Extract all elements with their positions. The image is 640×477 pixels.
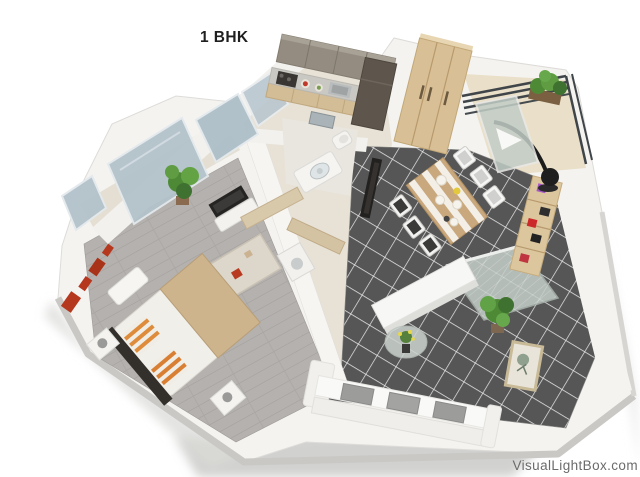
floorplan-page: 1 BHK VisualLightBox.com [0, 0, 640, 477]
watermark-link[interactable]: VisualLightBox.com [512, 458, 638, 473]
picture-frame [505, 342, 542, 391]
floorplan-render: 1 BHK VisualLightBox.com [0, 0, 640, 477]
coffee-table [385, 326, 427, 358]
page-title: 1 BHK [200, 29, 249, 46]
